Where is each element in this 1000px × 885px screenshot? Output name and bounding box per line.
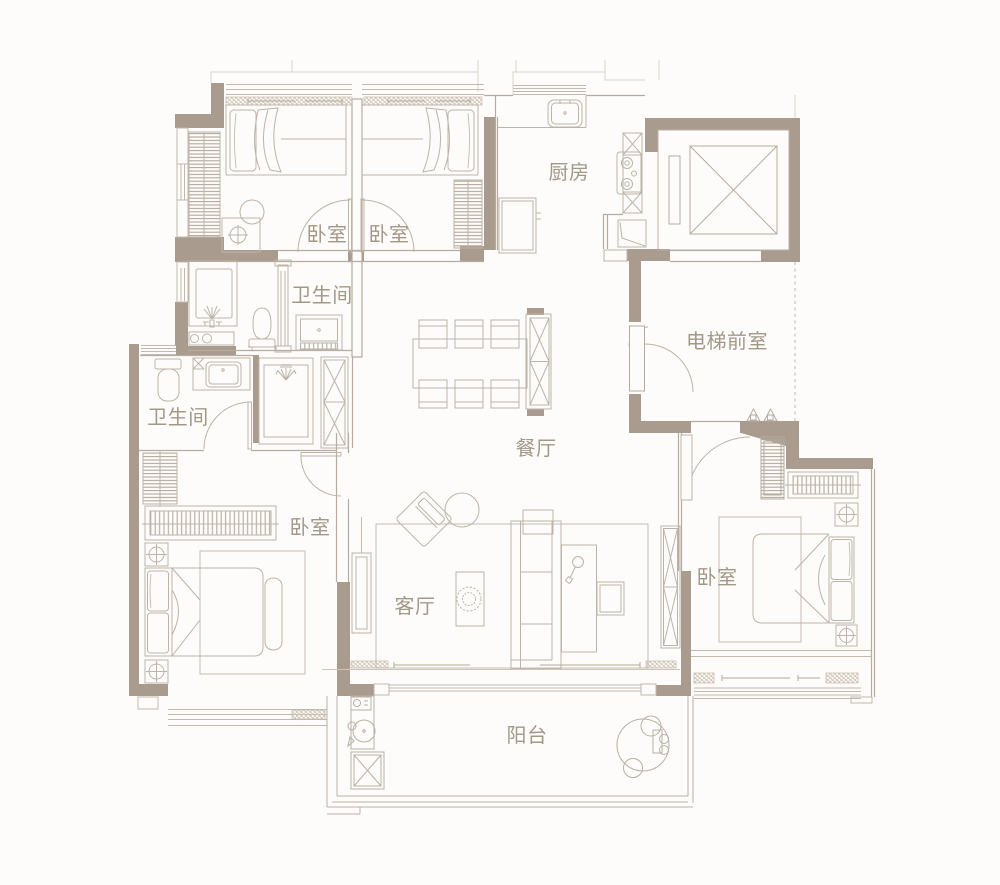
svg-text:卧室: 卧室: [307, 223, 348, 246]
svg-text:电梯前室: 电梯前室: [686, 330, 768, 353]
svg-text:客厅: 客厅: [395, 595, 436, 618]
svg-text:厨房: 厨房: [549, 161, 590, 184]
svg-text:卧室: 卧室: [697, 566, 738, 589]
svg-text:阳台: 阳台: [507, 724, 548, 747]
svg-text:卧室: 卧室: [369, 223, 410, 246]
svg-text:卫生间: 卫生间: [291, 284, 353, 307]
svg-text:卫生间: 卫生间: [147, 406, 209, 429]
svg-text:卧室: 卧室: [290, 516, 331, 539]
svg-text:餐厅: 餐厅: [516, 437, 557, 460]
